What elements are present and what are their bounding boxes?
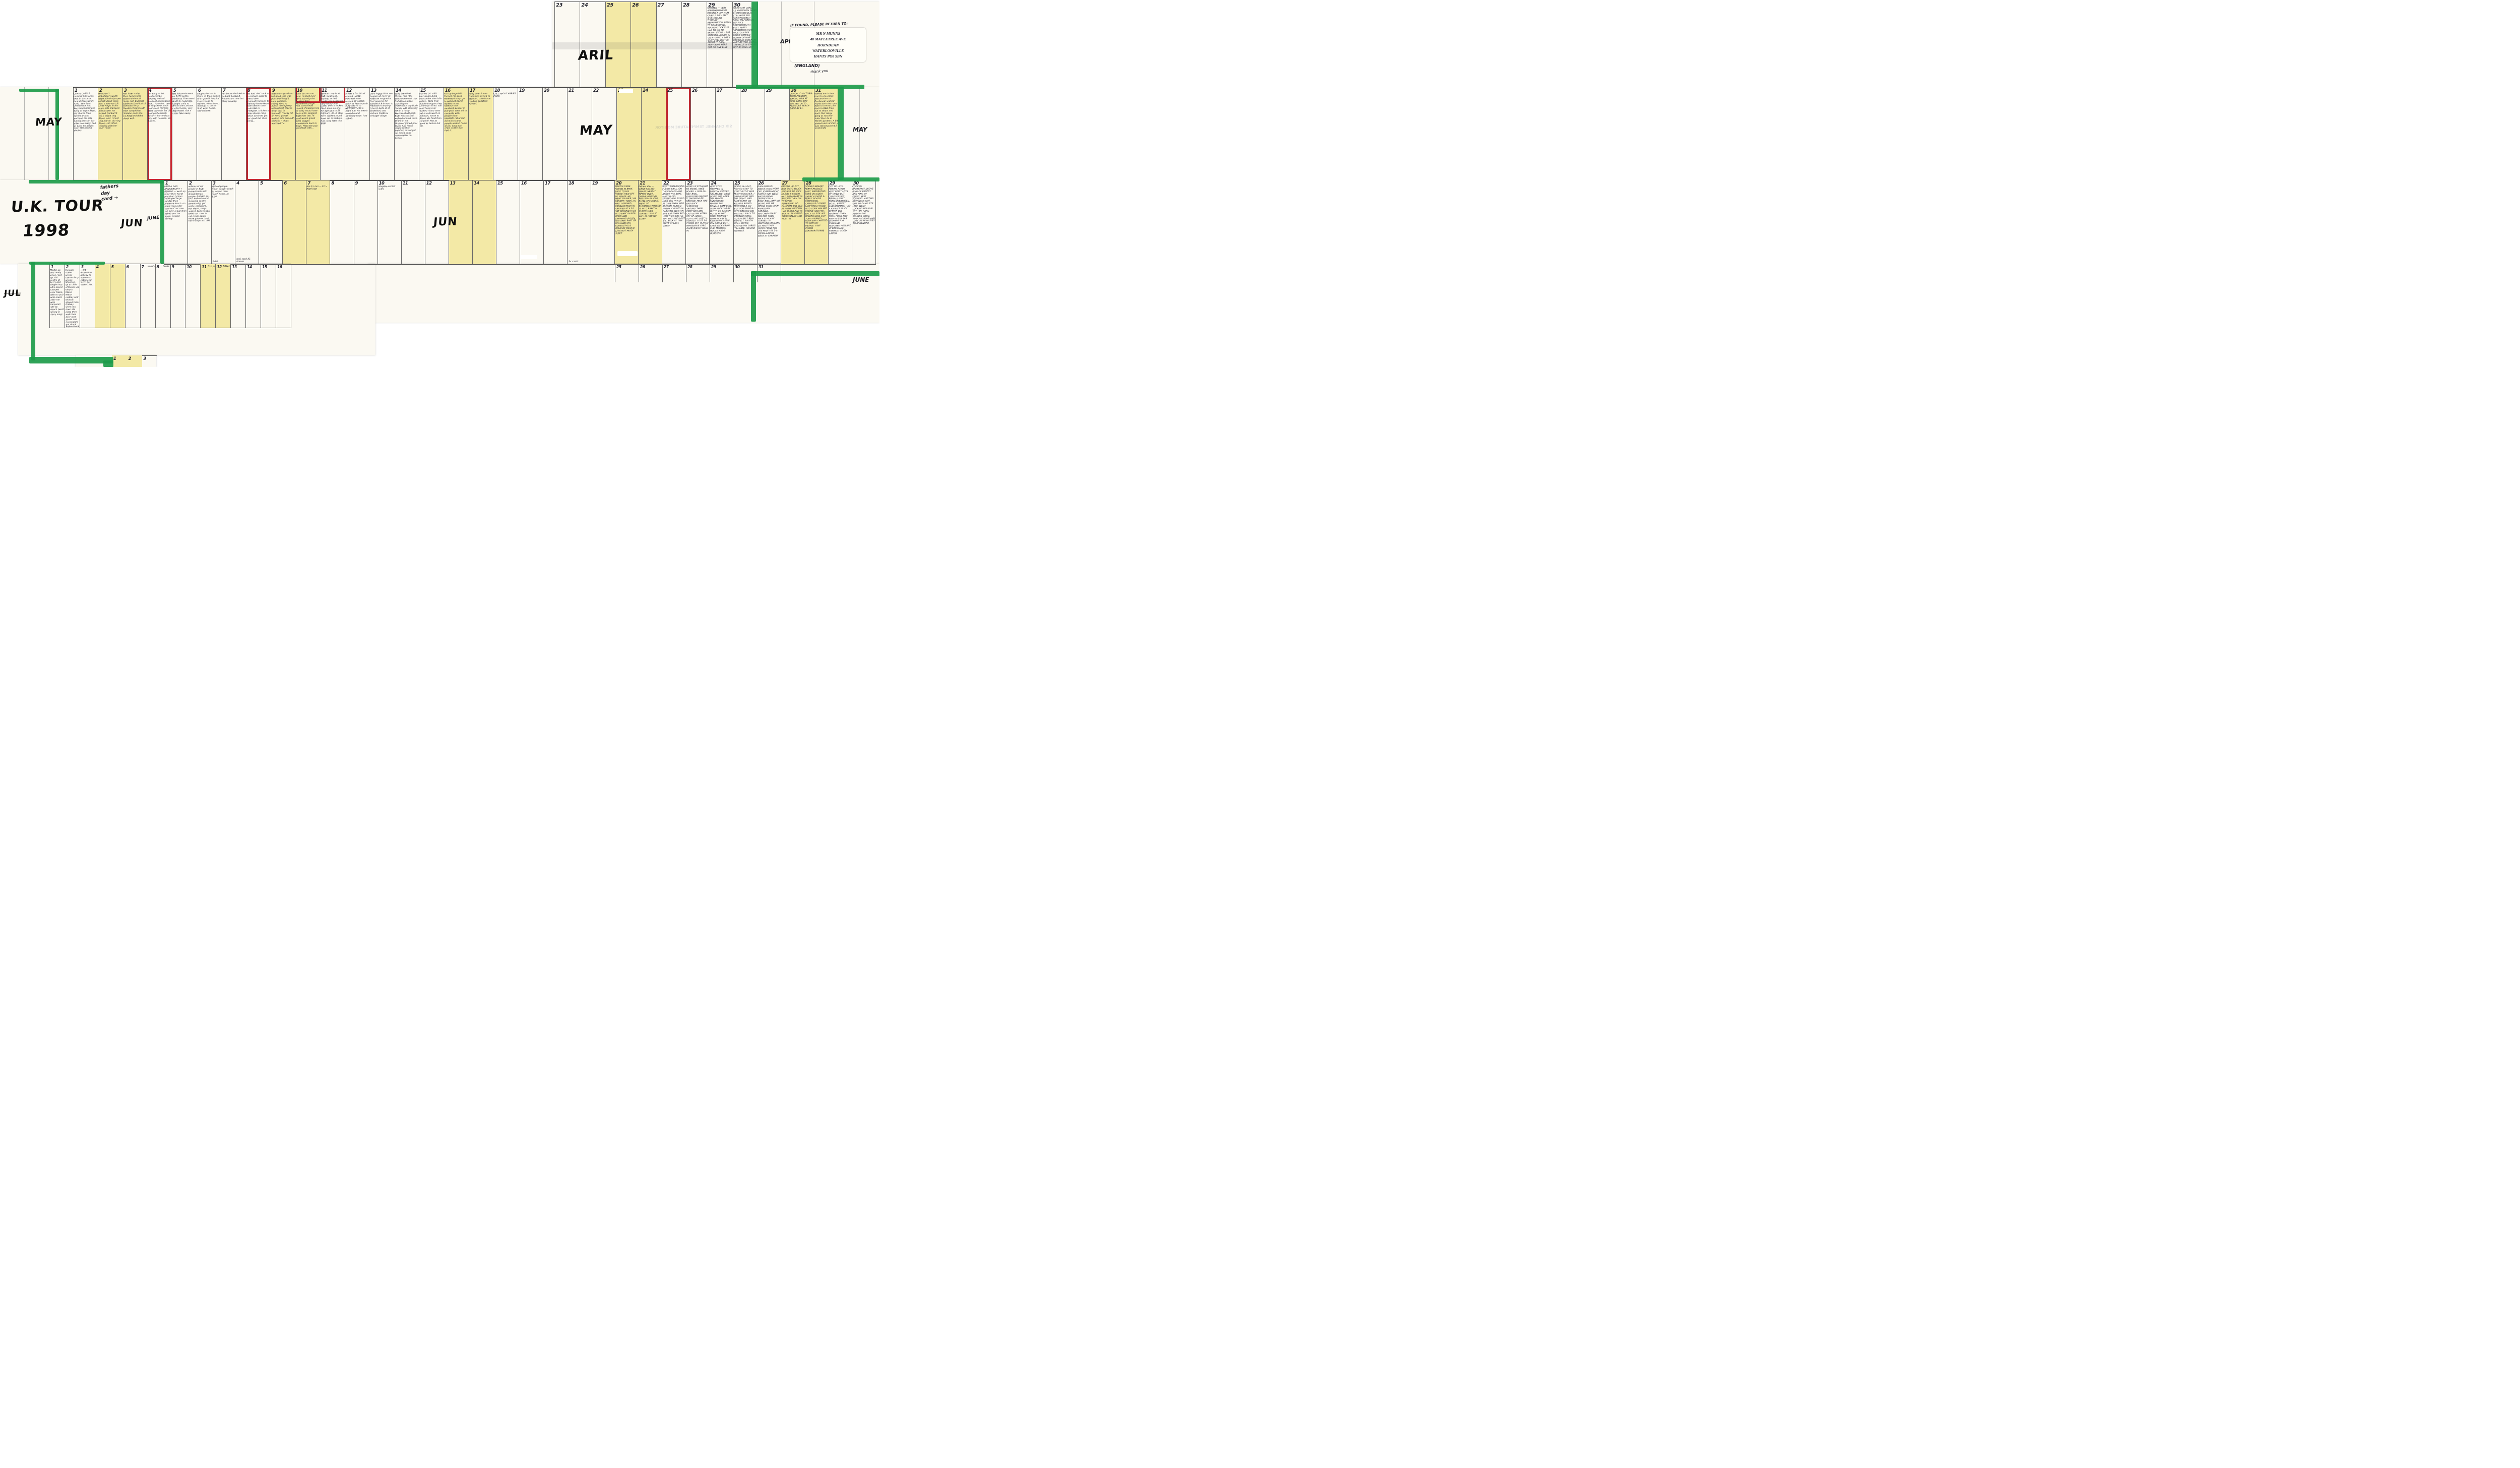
day-number: 19 xyxy=(519,88,525,93)
may-day-cell: 16 FA cup huge hills Porlock hill good M… xyxy=(444,88,468,180)
day-number: 20 xyxy=(544,88,549,93)
june-day-cell: 4 toni card A1 horses xyxy=(235,180,259,264)
uk-tour-title: U.K. TOUR xyxy=(10,197,104,216)
july-day-cell: 10 xyxy=(185,264,200,328)
day-entry xyxy=(740,93,765,180)
day-number: 4 xyxy=(236,181,239,186)
may-day-cell: 9 Alison was good so I felt good (she wa… xyxy=(271,88,295,180)
day-number: 25 xyxy=(616,265,621,269)
day-entry xyxy=(642,93,666,180)
day-entry xyxy=(276,270,290,327)
june-day-cell: 29 GOT UP LATE. MARTIN READY VERY RAINY … xyxy=(828,180,852,264)
day-number: 1 xyxy=(113,356,116,361)
day-number: 14 xyxy=(474,181,479,186)
day-entry xyxy=(520,186,543,264)
day-entry: MUM & DAD ANNIVERSARY + REMIND — went up… xyxy=(164,186,187,264)
day-number: 26 xyxy=(759,181,764,186)
day-entry: CALL ABOUT ABBIES CARD xyxy=(493,93,518,180)
may-day-cell: 18 CALL ABOUT ABBIES CARD xyxy=(493,88,518,180)
july-day-cell: 14 xyxy=(245,264,261,328)
day-entry xyxy=(691,93,715,180)
may-day-cell: 15 started OK. A39 barnstable A361 Ilfra… xyxy=(419,88,444,180)
whiteout-patch xyxy=(619,89,633,93)
day-entry xyxy=(716,93,740,180)
june-row: 1 MUM & DAD ANNIVERSARY + REMIND — went … xyxy=(164,180,876,265)
day-number: 9 xyxy=(355,181,358,186)
day-entry: GOT UP LATE. MARTIN READY VERY RAINY LOT… xyxy=(829,186,852,264)
day-number: 7 xyxy=(223,88,225,93)
jun-big-label: JUN xyxy=(120,217,144,229)
green-marker-segment xyxy=(19,89,58,92)
day-entry: walked north then tram to cleveleys and … xyxy=(814,93,839,180)
day-number: 17 xyxy=(545,181,550,186)
day-entry: left early at 10, babbacombe torquay wal… xyxy=(148,93,172,180)
day-number: 12 xyxy=(426,181,432,186)
may-day-cell: 3 Felt fitter today. More fuckin hills, … xyxy=(122,88,147,180)
day-number: 29 xyxy=(830,181,835,186)
day-entry xyxy=(543,93,567,180)
may-day-cell: 19 xyxy=(518,88,542,180)
june-day-cell: 21 fathers day — WENT SAILING SMART. NEA… xyxy=(638,180,662,264)
day-number: 2 xyxy=(99,88,102,93)
day-entry xyxy=(171,270,185,327)
june-day-cell: 3 still old people there. caught coach t… xyxy=(211,180,235,264)
june-day-cell: 15 xyxy=(496,180,520,264)
green-marker-segment xyxy=(736,85,864,89)
day-entry: hung over Steam train then cycled to tau… xyxy=(469,93,493,180)
may-day-cell: 28 xyxy=(740,88,765,180)
day-number: 8 xyxy=(331,181,334,186)
day-number: 30 xyxy=(734,3,740,8)
day-number: 22 xyxy=(663,181,669,186)
day-footnote: 2x cards xyxy=(569,261,590,263)
day-entry: at last a flat bit all around HAYLE. Por… xyxy=(345,93,369,180)
june-day-cell: 9 xyxy=(354,180,377,264)
may-day-cell: 29 xyxy=(765,88,789,180)
may-day-cell: 5 left Salcombe went on A379 got to Modb… xyxy=(172,88,197,180)
day-entry xyxy=(591,186,614,264)
day-number: 18 xyxy=(494,88,500,93)
day-number: 10 xyxy=(186,265,191,269)
day-entry xyxy=(765,93,789,180)
june-day-cell: 27 PACKED UP. PUT BIKE ONTO TRUCK SAID B… xyxy=(781,180,804,264)
day-number: 27 xyxy=(664,265,668,269)
april-big-label: ARIL xyxy=(578,47,614,63)
day-number: 27 xyxy=(658,3,664,8)
day-number: 30 xyxy=(853,181,859,186)
day-entry xyxy=(235,186,259,264)
green-marker-segment xyxy=(55,89,59,180)
day-entry xyxy=(473,186,496,264)
july-day-cell: 5 xyxy=(110,264,125,328)
green-marker-segment xyxy=(751,271,879,276)
day-number: 20 xyxy=(616,181,621,186)
day-number: 4 xyxy=(96,265,99,269)
day-number: 9 xyxy=(272,88,275,93)
day-number: 24 xyxy=(581,3,588,8)
may-day-cell: 17 hung over Steam train then cycled to … xyxy=(468,88,493,180)
may-day-cell: 26 xyxy=(690,88,715,180)
whiteout-patch xyxy=(520,255,537,259)
day-number: 26 xyxy=(692,88,698,93)
june-day-cell: 11 xyxy=(401,180,425,264)
day-number: 16 xyxy=(277,265,282,269)
day-entry: (illegible circled note) xyxy=(378,186,401,264)
day-entry: caught the bus to Cams rd then walked to… xyxy=(197,93,221,180)
july-day-cell: 7 semi — xyxy=(140,264,155,328)
subrow-number-cell: 29 xyxy=(710,264,733,282)
june-day-cell: 7 Alis 1½ hrs — F1 ↳ INDY CAR xyxy=(306,180,330,264)
may-day-cell: 20 xyxy=(542,88,567,180)
june-day-cell: 8 xyxy=(330,180,353,264)
day-number: 10 xyxy=(297,88,302,93)
day-entry: Martin up and ready when I got up. did c… xyxy=(50,270,64,327)
day-number: 14 xyxy=(396,88,401,93)
day-number: 3 xyxy=(81,265,84,269)
day-entry: Ultra foggy didnt see buggar all. ferry … xyxy=(370,93,394,180)
day-number: 5 xyxy=(260,181,263,186)
day-number: 19 xyxy=(592,181,598,186)
day-entry: COOKED BREAKFAST DROVE RING OF BANTRY AN… xyxy=(852,186,875,264)
july-day-cell: 9 xyxy=(170,264,185,328)
green-marker-segment xyxy=(160,180,164,264)
day-number: 5 xyxy=(111,265,114,269)
june-day-cell: 24 VERY STIFF. SHOPPED IN BRECON MENDED … xyxy=(709,180,733,264)
day-entry: millions of old people in B&B. shared ta… xyxy=(188,186,211,264)
day-number-note: FINAL xyxy=(223,265,230,268)
day-number: 10 xyxy=(379,181,385,186)
return-note-heading: IF FOUND, PLEASE RETURN TO: xyxy=(790,21,866,27)
day-number: 8 xyxy=(247,88,250,93)
july-day-cell: 4 xyxy=(95,264,110,328)
day-number-note: semi — xyxy=(148,265,155,268)
june-day-cell: 19 xyxy=(591,180,614,264)
day-number: 25 xyxy=(607,3,613,8)
day-number: 7 xyxy=(307,181,310,186)
day-entry xyxy=(496,186,520,264)
day-entry xyxy=(125,270,140,327)
day-number: 6 xyxy=(284,181,286,186)
day-number: 26 xyxy=(640,265,645,269)
day-number: 26 xyxy=(632,3,639,8)
day-entry: fathers day — WENT SAILING SMART. NEARLY… xyxy=(639,186,662,264)
jun-next-label: JUNE xyxy=(147,215,160,221)
grid-line xyxy=(24,87,25,180)
day-number: 31 xyxy=(759,265,763,269)
day-footnote: toni card A1 horses xyxy=(236,258,258,263)
day-entry: left Salcombe went on A379 got to Modbur… xyxy=(172,93,197,180)
return-note: IF FOUND, PLEASE RETURN TO: MR N MUNNS40… xyxy=(790,22,866,72)
day-entry: VERY STIFF. SHOPPED IN BRECON MENDED INF… xyxy=(710,186,733,264)
may-day-cell: 4 left early at 10, babbacombe torquay w… xyxy=(147,88,172,180)
day-entry xyxy=(544,186,567,264)
day-entry: SKIING ALL DAY. NOT SO STIFF TO START BU… xyxy=(734,186,757,264)
june-day-cell: 25 SKIING ALL DAY. NOT SO STIFF TO START… xyxy=(733,180,757,264)
day-entry xyxy=(617,93,641,180)
day-entry: through Tralee across canton ferry acros… xyxy=(65,270,79,327)
day-number: 6 xyxy=(198,88,201,93)
day-number: 9 xyxy=(172,265,174,269)
day-number: 2 xyxy=(189,181,192,186)
grid-line xyxy=(48,87,49,180)
day-number: 3 xyxy=(143,356,146,361)
green-marker-segment xyxy=(751,2,758,87)
day-number: 12 xyxy=(217,265,221,269)
day-number: 28 xyxy=(683,3,689,8)
grid-line xyxy=(859,87,860,180)
green-marker-segment xyxy=(103,360,113,367)
day-number: 2 xyxy=(129,356,131,361)
address-line: HANTS PO8 9BN xyxy=(792,53,864,59)
day-number-note: finals — xyxy=(163,265,170,268)
july-day-cell: 16 xyxy=(276,264,291,328)
may-day-cell: 2 HARD DAY. Abbotsbury worth large hill … xyxy=(98,88,122,180)
day-number: 23 xyxy=(687,181,692,186)
day-entry: german couple at B&B. lands end. tourist… xyxy=(321,93,345,180)
address-line: HORNDEAN xyxy=(792,42,864,48)
day-number: 15 xyxy=(497,181,503,186)
day-number: 11 xyxy=(403,181,408,186)
august-number-cell: 3 xyxy=(142,356,157,367)
day-entry xyxy=(156,270,170,327)
day-entry xyxy=(283,186,306,264)
day-number: 24 xyxy=(711,181,716,186)
day-number: 18 xyxy=(569,181,574,186)
day-entry: COACH TO VICTORIA THEN PRESTON B/POOL. B… xyxy=(790,93,814,180)
june-day-cell: 28 COOKED BREAKY. FERRY PASSAGE EAST, WA… xyxy=(804,180,828,264)
day-number: 1 xyxy=(51,265,53,269)
scanned-wall-planner: SIX CHANNEL TEMPERATURE MONITOR 23 24 25… xyxy=(0,0,879,367)
green-marker-segment xyxy=(29,180,164,183)
june-day-cell: 14 xyxy=(472,180,496,264)
day-entry xyxy=(568,186,591,264)
june-side-label: JUNE xyxy=(853,276,869,283)
green-marker-segment xyxy=(838,87,844,180)
jun-mid-label: JUN xyxy=(433,216,458,229)
day-entry xyxy=(402,186,425,264)
day-number: 6 xyxy=(127,265,129,269)
address-line: WATERLOOVILLE xyxy=(792,48,864,53)
day-number: 3 xyxy=(124,88,127,93)
may-day-cell: 11 german couple at B&B. lands end. tour… xyxy=(320,88,345,180)
july-day-cell: 11 3rd place xyxy=(200,264,215,328)
day-number: 28 xyxy=(687,265,692,269)
may-day-cell: 7 felt better decided to go back & b&b i… xyxy=(221,88,246,180)
may-day-cell: 23 xyxy=(616,88,641,180)
fathers-day-note: fathers day card → xyxy=(100,183,120,203)
day-entry: FA cup huge hills Porlock hill good Mine… xyxy=(444,93,468,180)
august-weekend-highlight xyxy=(112,355,142,367)
june-day-cell: 1 MUM & DAD ANNIVERSARY + REMIND — went … xyxy=(164,180,187,264)
day-number: 25 xyxy=(667,88,673,93)
july-row: 1 Martin up and ready when I got up. did… xyxy=(49,264,291,328)
may-day-cell: 6 caught the bus to Cams rd then walked … xyxy=(197,88,221,180)
subrow-number-cell: 26 xyxy=(639,264,662,282)
green-marker-segment xyxy=(31,262,35,360)
july-day-cell: 2 through Tralee across canton ferry acr… xyxy=(65,264,80,328)
day-number: 16 xyxy=(521,181,527,186)
day-entry: WOKE UP STRAIGHT TO SKIING. KNEE BOARD +… xyxy=(686,186,710,264)
day-number: 25 xyxy=(735,181,740,186)
jul-label: JUL xyxy=(4,288,22,299)
day-number: 22 xyxy=(593,88,599,93)
day-number: 13 xyxy=(232,265,236,269)
day-number: 11 xyxy=(202,265,206,269)
day-entry: WENT WATERSKIING FUCKIN BRILL. ON THEM L… xyxy=(663,186,686,264)
may-day-cell: 12 at last a flat bit all around HAYLE. … xyxy=(345,88,369,180)
may-day-cell: 1 CORFE CASTLE purbeck hills Army shut i… xyxy=(73,88,98,180)
day-entry: Alison was good so I felt good (she was … xyxy=(271,93,295,180)
day-number: 1 xyxy=(165,181,168,186)
day-number: 27 xyxy=(717,88,722,93)
day-entry xyxy=(246,270,261,327)
address-line: 40 MAPLETREE AVE xyxy=(792,36,864,42)
day-number: 13 xyxy=(371,88,376,93)
day-entry: CORFE CASTLE purbeck hills Army shut in … xyxy=(74,93,98,180)
day-entry: HARD DAY. Abbotsbury worth large hill wi… xyxy=(98,93,122,180)
address-label: MR N MUNNS40 MAPLETREE AVEHORNDEANWATERL… xyxy=(790,28,866,62)
day-entry: early breakfast. Mental hills FOG everyw… xyxy=(395,93,419,180)
day-entry xyxy=(216,270,230,327)
day-entry xyxy=(110,270,124,327)
day-entry xyxy=(666,93,690,180)
may-big-label: MAY xyxy=(579,123,613,138)
day-number: 8 xyxy=(157,265,159,269)
day-number: 17 xyxy=(470,88,475,93)
day-entry: felt better decided to go back & b&b it.… xyxy=(222,93,246,180)
july-day-cell: 8 finals — xyxy=(155,264,170,328)
day-entry xyxy=(354,186,377,264)
day-number: 27 xyxy=(782,181,788,186)
day-number: 21 xyxy=(569,88,574,93)
day-number: 5 xyxy=(173,88,176,93)
june-day-cell: 18 2x cards xyxy=(567,180,591,264)
june-day-cell: 16 xyxy=(520,180,543,264)
day-entry: Felt fitter today. More fuckin hills, se… xyxy=(123,93,147,180)
may-day-cell: 10 RAIN but not too long. Helford river … xyxy=(295,88,320,180)
june-day-cell: 26 RAIN BOSSED ABOUT. MICK WENT OFF. JOI… xyxy=(757,180,781,264)
day-footnote: Ads? xyxy=(213,261,234,263)
may-side-label: MAY xyxy=(853,126,867,133)
day-entry xyxy=(231,270,245,327)
day-entry: started OK. A39 barnstable A361 Ilfracom… xyxy=(419,93,444,180)
day-number: 4 xyxy=(149,88,151,93)
june-day-cell: 2 millions of old people in B&B. shared … xyxy=(187,180,211,264)
day-number: 11 xyxy=(322,88,327,93)
july-day-cell: 3 —1/4— drove from galway to home via ca… xyxy=(80,264,95,328)
june-day-cell: 23 WOKE UP STRAIGHT TO SKIING. KNEE BOAR… xyxy=(685,180,709,264)
july-day-cell: 12 FINAL xyxy=(215,264,230,328)
day-number-note: 3rd place xyxy=(208,265,215,268)
subrow-number-cell: 27 xyxy=(662,264,686,282)
may-left-label: MAY xyxy=(35,116,63,129)
day-entry: RAIN but not too long. Helford river fer… xyxy=(296,93,320,180)
day-number: 3 xyxy=(213,181,215,186)
uk-tour-year: 1998 xyxy=(22,220,71,240)
day-number: 7 xyxy=(142,265,144,269)
day-number: 16 xyxy=(445,88,451,93)
day-entry: Alis 1½ hrs — F1 ↳ INDY CAR xyxy=(307,186,330,264)
day-entry xyxy=(518,93,542,180)
may-day-cell: 25 xyxy=(666,88,690,180)
day-entry: felt bad 'dad' took us to cosham. back t… xyxy=(246,93,271,180)
day-number: 15 xyxy=(420,88,426,93)
may-day-cell: 14 early breakfast. Mental hills FOG eve… xyxy=(394,88,419,180)
subrow-number-cell: 28 xyxy=(686,264,710,282)
may-day-cell: 13 Ultra foggy didnt see buggar all. fer… xyxy=(369,88,394,180)
day-entry xyxy=(201,270,215,327)
june-day-cell: 30 COOKED BREAKFAST DROVE RING OF BANTRY… xyxy=(852,180,876,264)
day-number: 23 xyxy=(556,3,562,8)
green-marker-segment xyxy=(29,357,113,363)
green-marker-segment xyxy=(29,262,105,265)
july-day-cell: 6 xyxy=(125,264,140,328)
may-row: 1 CORFE CASTLE purbeck hills Army shut i… xyxy=(73,87,839,181)
day-entry: PACKED UP. PUT BIKE ONTO TRUCK SAID BYE … xyxy=(781,186,804,264)
day-number: 29 xyxy=(708,3,715,8)
address-line: MR N MUNNS xyxy=(792,31,864,36)
day-entry xyxy=(262,270,276,327)
day-entry: still old people there. caught coach to … xyxy=(212,186,235,264)
day-number: 30 xyxy=(735,265,739,269)
july-day-cell: 13 xyxy=(230,264,245,328)
day-entry xyxy=(95,270,109,327)
day-number: 12 xyxy=(346,88,352,93)
may-day-cell: 24 xyxy=(641,88,666,180)
whiteout-patch xyxy=(617,251,638,256)
june-day-cell: 22 WENT WATERSKIING FUCKIN BRILL. ON THE… xyxy=(662,180,685,264)
june-day-cell: 17 xyxy=(543,180,567,264)
may-day-cell: 31 walked north then tram to cleveleys a… xyxy=(814,88,839,180)
day-number: 24 xyxy=(643,88,648,93)
july-day-cell: 15 xyxy=(261,264,276,328)
day-entry: COOKED BREAKY. FERRY PASSAGE EAST, WATER… xyxy=(805,186,828,264)
subrow-number-cell: 25 xyxy=(615,264,639,282)
day-entry xyxy=(259,186,282,264)
june-day-cell: 5 xyxy=(259,180,282,264)
day-entry xyxy=(141,270,155,327)
day-number: 28 xyxy=(806,181,811,186)
day-number: 21 xyxy=(640,181,645,186)
may-day-cell: 27 xyxy=(715,88,740,180)
june-day-cell: 10 (illegible circled note) xyxy=(377,180,401,264)
june-day-cell: 6 xyxy=(282,180,306,264)
day-number: 29 xyxy=(711,265,716,269)
green-marker-segment xyxy=(802,177,879,181)
day-number: 1 xyxy=(75,88,77,93)
day-entry: RAIN BOSSED ABOUT. MICK WENT OFF. JOINED… xyxy=(758,186,781,264)
day-number: 14 xyxy=(247,265,251,269)
day-number: 2 xyxy=(66,265,69,269)
day-entry: —1/4— drove from galway to home via cata… xyxy=(80,270,94,327)
day-number: 13 xyxy=(450,181,456,186)
may-day-cell: 30 COACH TO VICTORIA THEN PRESTON B/POOL… xyxy=(789,88,814,180)
green-marker-segment xyxy=(751,271,756,322)
day-number: 15 xyxy=(262,265,267,269)
may-day-cell: 8 felt bad 'dad' took us to cosham. back… xyxy=(246,88,271,180)
day-entry xyxy=(331,186,354,264)
day-entry xyxy=(186,270,200,327)
july-day-cell: 1 Martin up and ready when I got up. did… xyxy=(49,264,65,328)
